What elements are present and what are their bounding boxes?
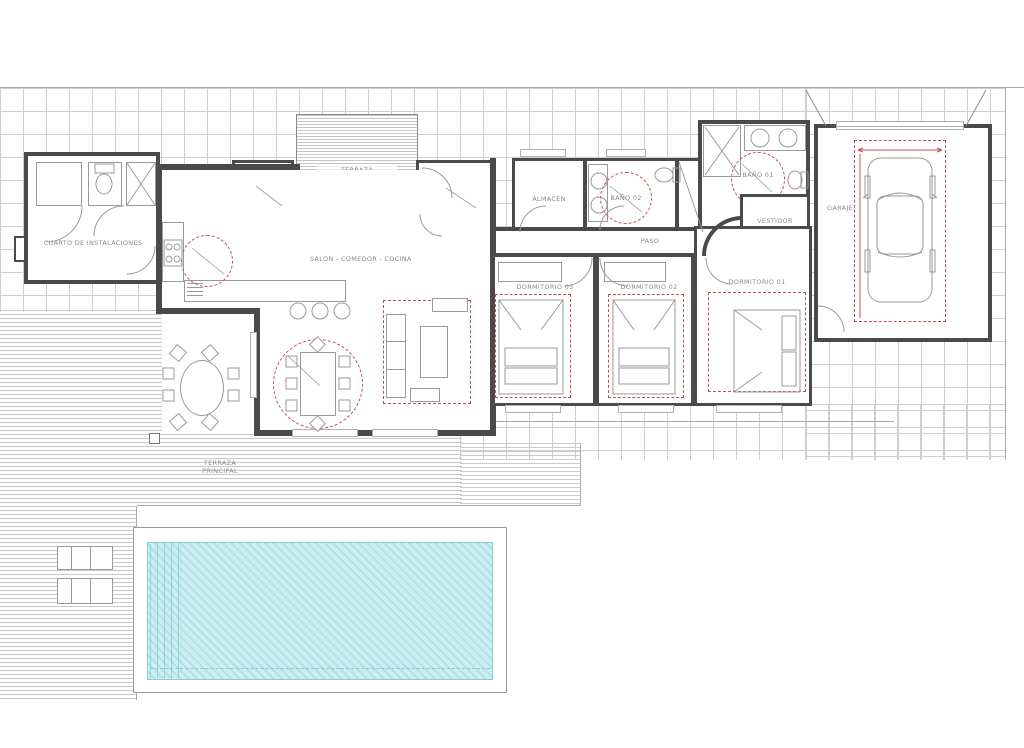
car — [863, 158, 937, 302]
bed-dorm3 — [499, 300, 563, 394]
lineart-overlay — [0, 0, 1024, 748]
dimension-leaders — [192, 164, 772, 386]
parking-dimensions — [858, 148, 942, 318]
outdoor-chairs — [163, 345, 239, 431]
bano01-fixtures — [705, 127, 808, 189]
door-arcs — [420, 168, 844, 332]
bed-dorm2 — [613, 300, 675, 394]
bano02-fixtures — [591, 162, 703, 232]
bar-stools — [290, 303, 350, 319]
curved-partition — [704, 218, 742, 284]
bed-dorm1 — [734, 310, 800, 392]
utility-fixtures — [46, 163, 155, 274]
floor-plan-canvas: TERRAZA PRINCIPAL CUARTO DE INSTALACIONE… — [0, 0, 1024, 748]
driveway-splays — [806, 90, 986, 126]
stove — [164, 240, 182, 266]
